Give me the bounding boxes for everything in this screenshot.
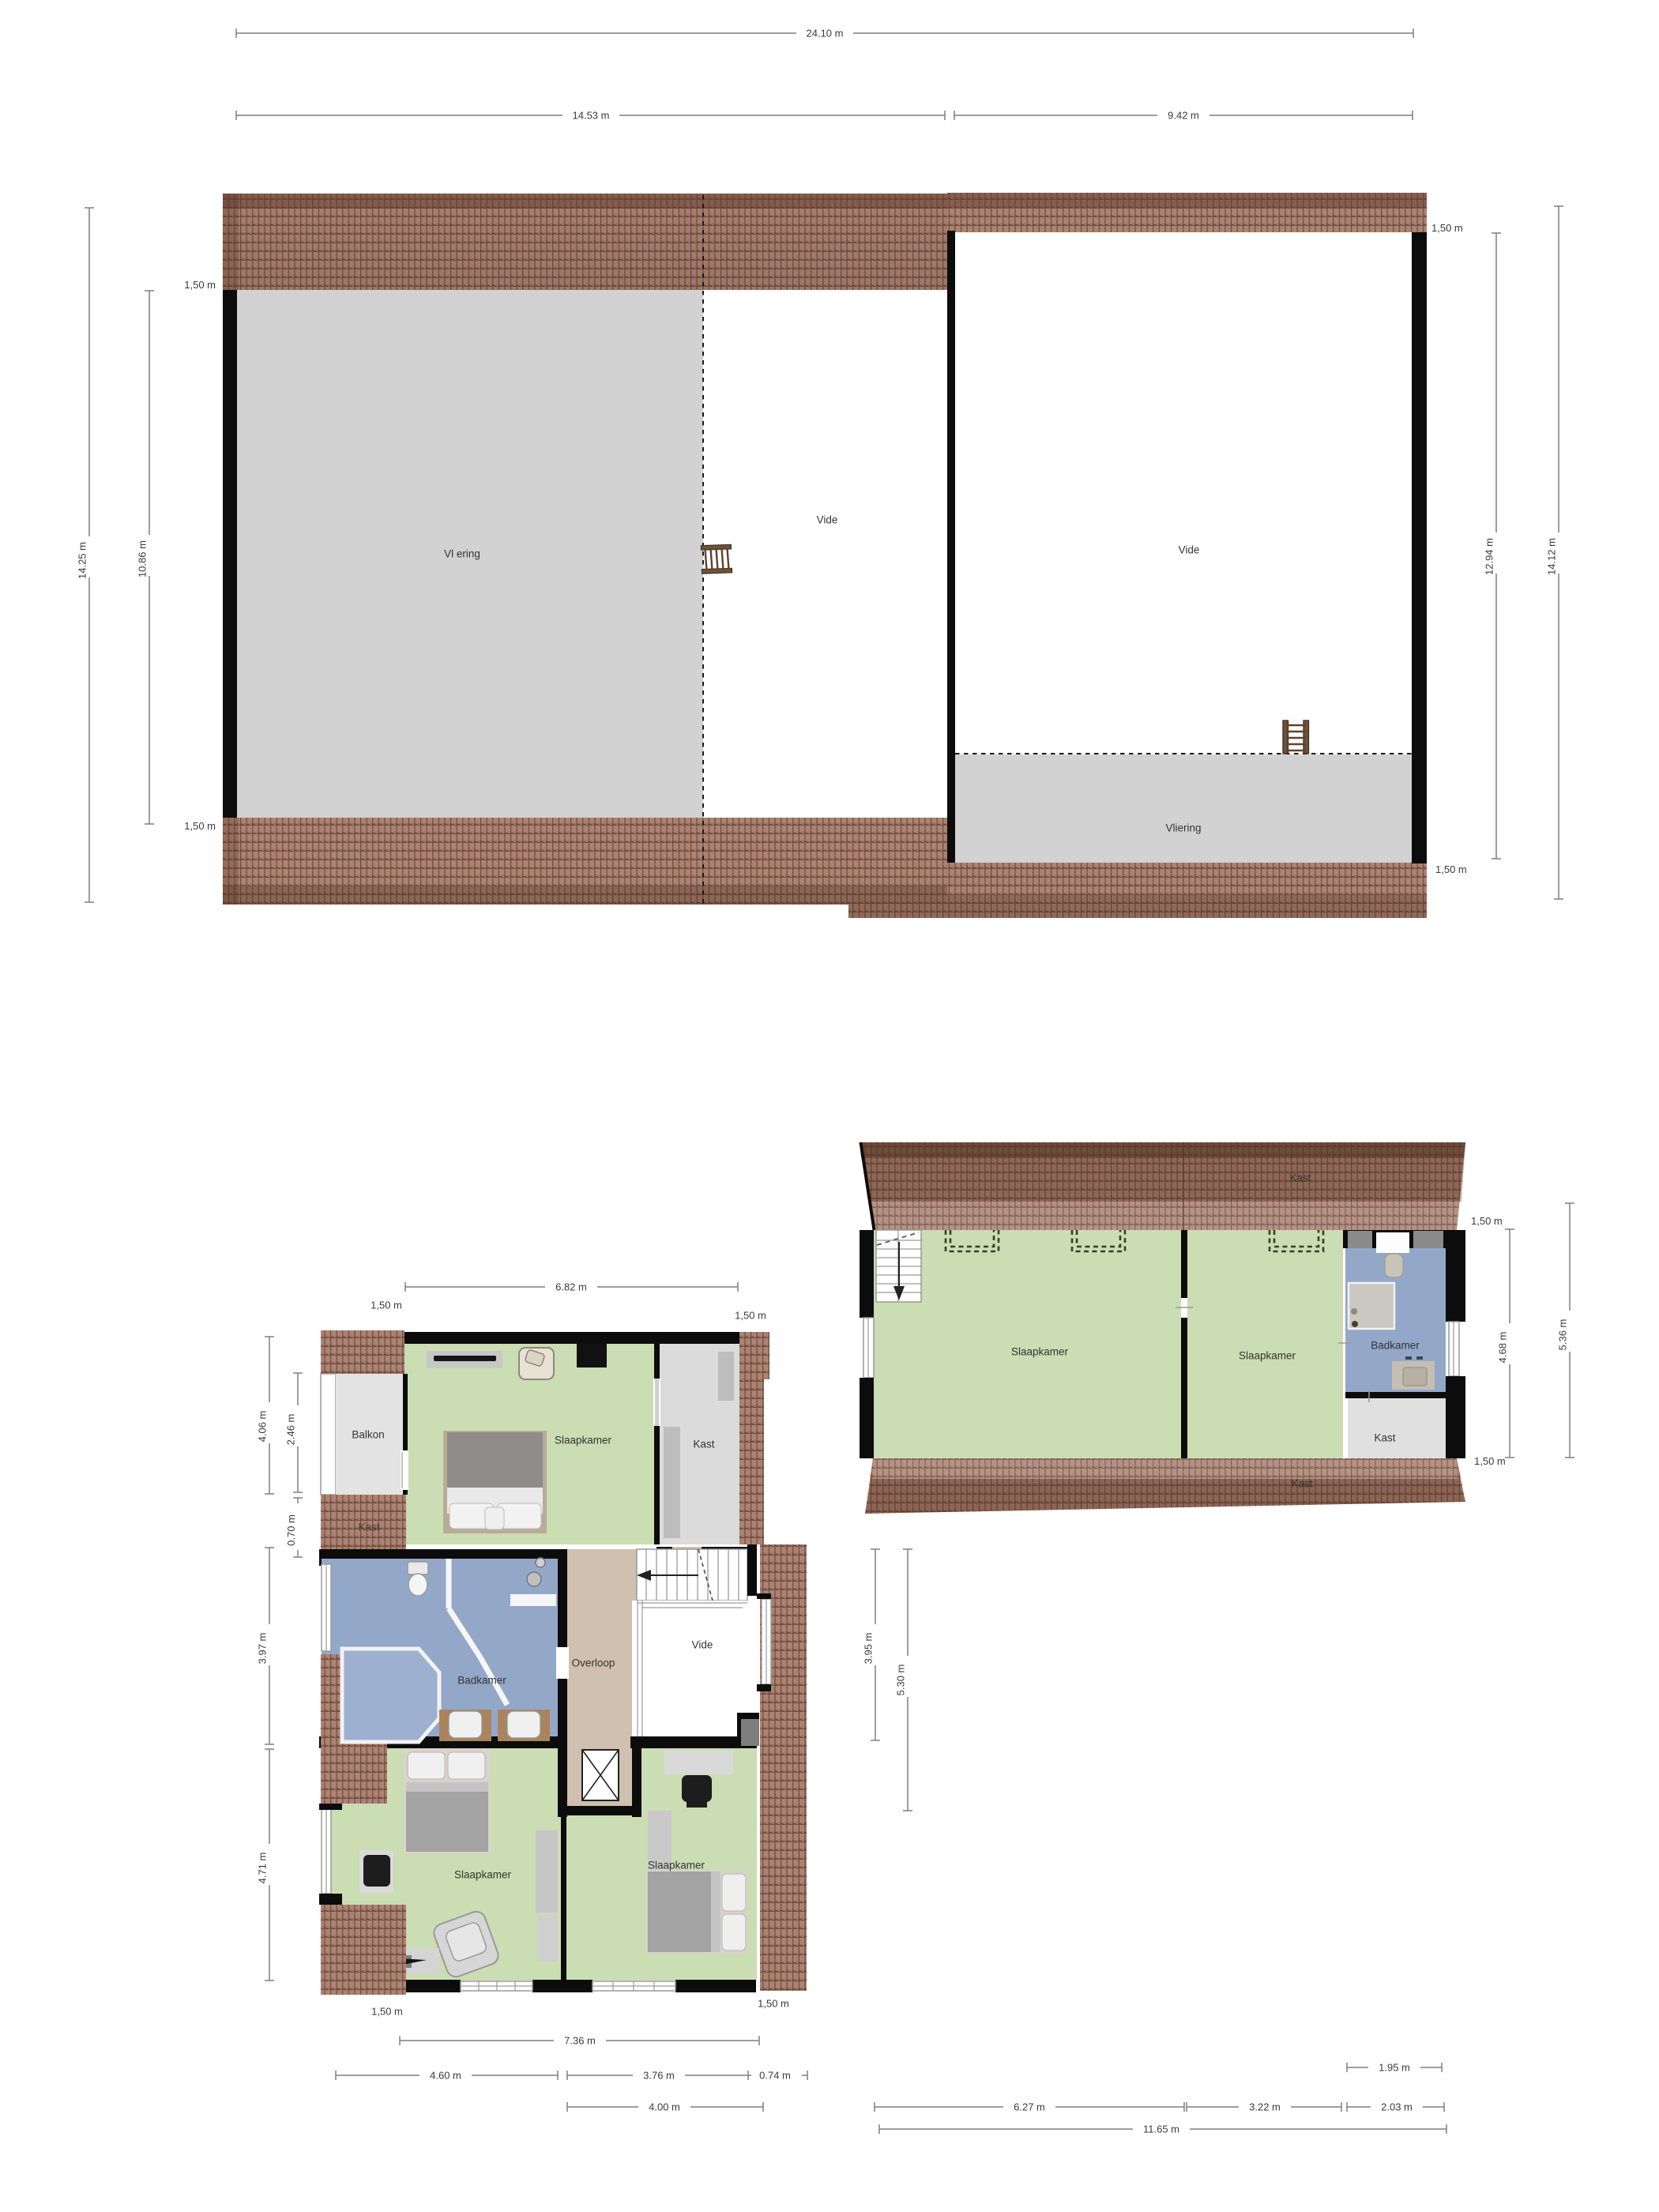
svg-text:Vide: Vide — [1179, 544, 1200, 556]
svg-text:2.03 m: 2.03 m — [1381, 2101, 1413, 2113]
svg-text:1,50 m: 1,50 m — [371, 1300, 402, 1311]
svg-text:4.00 m: 4.00 m — [649, 2101, 680, 2113]
svg-text:0.70 m: 0.70 m — [285, 1514, 297, 1546]
svg-text:Balkon: Balkon — [352, 1429, 384, 1441]
svg-text:Badkamer: Badkamer — [457, 1675, 506, 1687]
svg-text:3.97 m: 3.97 m — [257, 1633, 269, 1665]
svg-text:Kast: Kast — [358, 1522, 379, 1533]
svg-text:1,50 m: 1,50 m — [371, 2006, 403, 2018]
svg-text:24.10 m: 24.10 m — [807, 28, 844, 39]
svg-text:4.68 m: 4.68 m — [1497, 1332, 1509, 1364]
svg-text:Slaapkamer: Slaapkamer — [1239, 1350, 1296, 1362]
svg-text:Kast: Kast — [1374, 1432, 1395, 1444]
svg-text:4.06 m: 4.06 m — [257, 1411, 269, 1443]
svg-text:1,50 m: 1,50 m — [758, 1998, 789, 2010]
svg-text:Kast: Kast — [693, 1439, 714, 1450]
svg-text:1,50 m: 1,50 m — [1431, 222, 1463, 234]
svg-text:Kast: Kast — [1289, 1172, 1311, 1184]
svg-text:Vide: Vide — [817, 514, 838, 526]
svg-text:14.25 m: 14.25 m — [77, 542, 88, 579]
svg-text:3.22 m: 3.22 m — [1249, 2101, 1281, 2113]
svg-text:9.42 m: 9.42 m — [1168, 110, 1199, 122]
svg-text:6.82 m: 6.82 m — [555, 1281, 587, 1293]
svg-text:5.36 m: 5.36 m — [1557, 1319, 1569, 1351]
svg-text:0.74 m: 0.74 m — [759, 2070, 791, 2082]
svg-text:1.95 m: 1.95 m — [1379, 2062, 1410, 2074]
svg-text:3.95 m: 3.95 m — [863, 1633, 875, 1665]
svg-text:1,50 m: 1,50 m — [735, 1310, 766, 1322]
svg-text:14.12 m: 14.12 m — [1546, 538, 1558, 575]
svg-text:11.65 m: 11.65 m — [1143, 2124, 1179, 2135]
svg-text:Slaapkamer: Slaapkamer — [648, 1860, 705, 1872]
svg-text:Vliering: Vliering — [1165, 822, 1201, 834]
svg-text:1,50 m: 1,50 m — [184, 279, 216, 291]
svg-text:Slaapkamer: Slaapkamer — [555, 1435, 612, 1446]
svg-text:4.71 m: 4.71 m — [257, 1853, 269, 1884]
svg-text:2.46 m: 2.46 m — [285, 1414, 297, 1446]
svg-text:6.27 m: 6.27 m — [1014, 2101, 1045, 2113]
svg-text:1,50 m: 1,50 m — [184, 820, 216, 832]
svg-text:14.53 m: 14.53 m — [573, 110, 610, 122]
svg-text:Badkamer: Badkamer — [1371, 1340, 1420, 1352]
svg-text:3.76 m: 3.76 m — [643, 2070, 675, 2082]
svg-text:Slaapkamer: Slaapkamer — [454, 1869, 512, 1881]
svg-text:1,50 m: 1,50 m — [1471, 1215, 1503, 1227]
svg-text:10.86 m: 10.86 m — [137, 540, 149, 577]
svg-text:Kast: Kast — [1291, 1478, 1312, 1490]
svg-text:1,50 m: 1,50 m — [1435, 863, 1467, 875]
svg-text:Overloop: Overloop — [572, 1657, 615, 1669]
svg-text:Vl ering: Vl ering — [444, 548, 480, 560]
svg-text:7.36 m: 7.36 m — [564, 2035, 596, 2047]
svg-text:4.60 m: 4.60 m — [430, 2070, 461, 2082]
svg-text:12.94 m: 12.94 m — [1484, 538, 1495, 575]
svg-text:Vide: Vide — [692, 1639, 713, 1651]
svg-text:5.30 m: 5.30 m — [895, 1665, 907, 1696]
svg-text:1,50 m: 1,50 m — [1474, 1455, 1506, 1467]
svg-text:Slaapkamer: Slaapkamer — [1011, 1346, 1069, 1358]
